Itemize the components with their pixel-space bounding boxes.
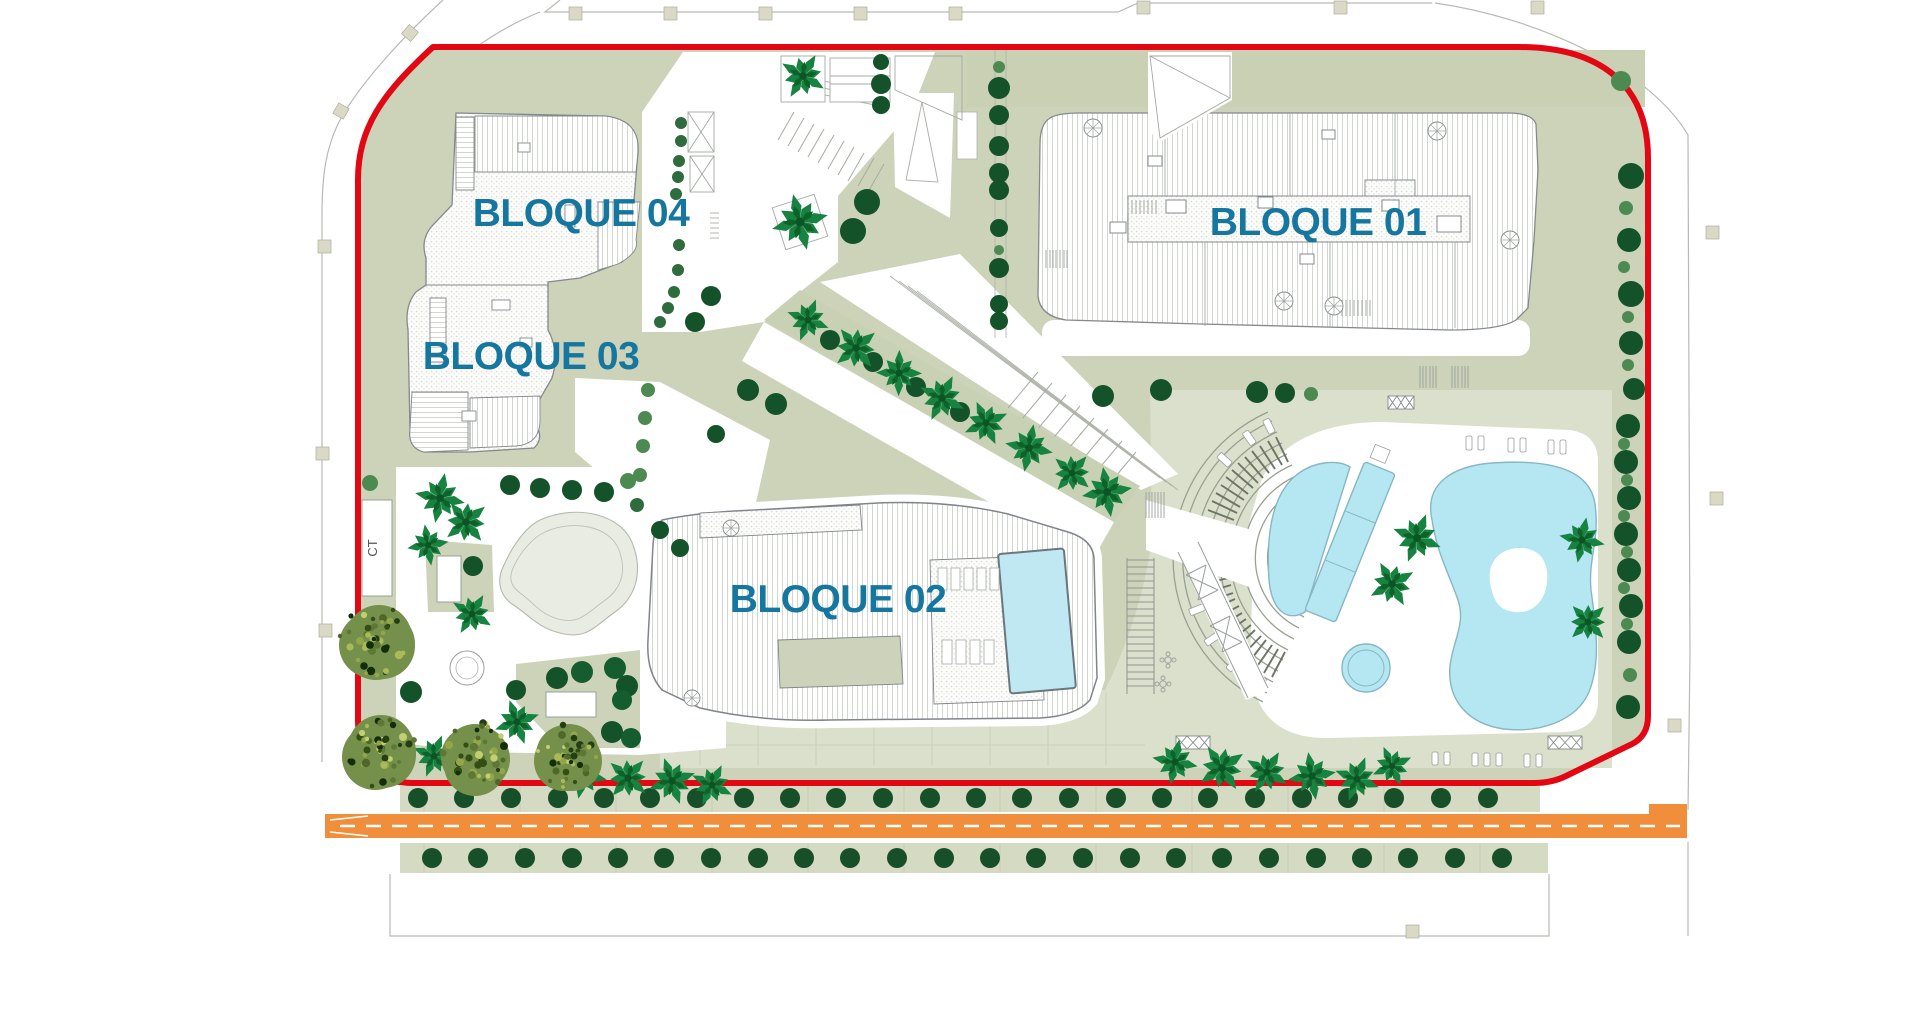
svg-text:BLOQUE 04: BLOQUE 04 [473,192,690,235]
svg-text:CT: CT [365,539,380,556]
svg-text:BLOQUE 03: BLOQUE 03 [423,335,640,378]
svg-text:BLOQUE 02: BLOQUE 02 [730,578,947,621]
svg-text:BLOQUE 01: BLOQUE 01 [1210,201,1427,244]
